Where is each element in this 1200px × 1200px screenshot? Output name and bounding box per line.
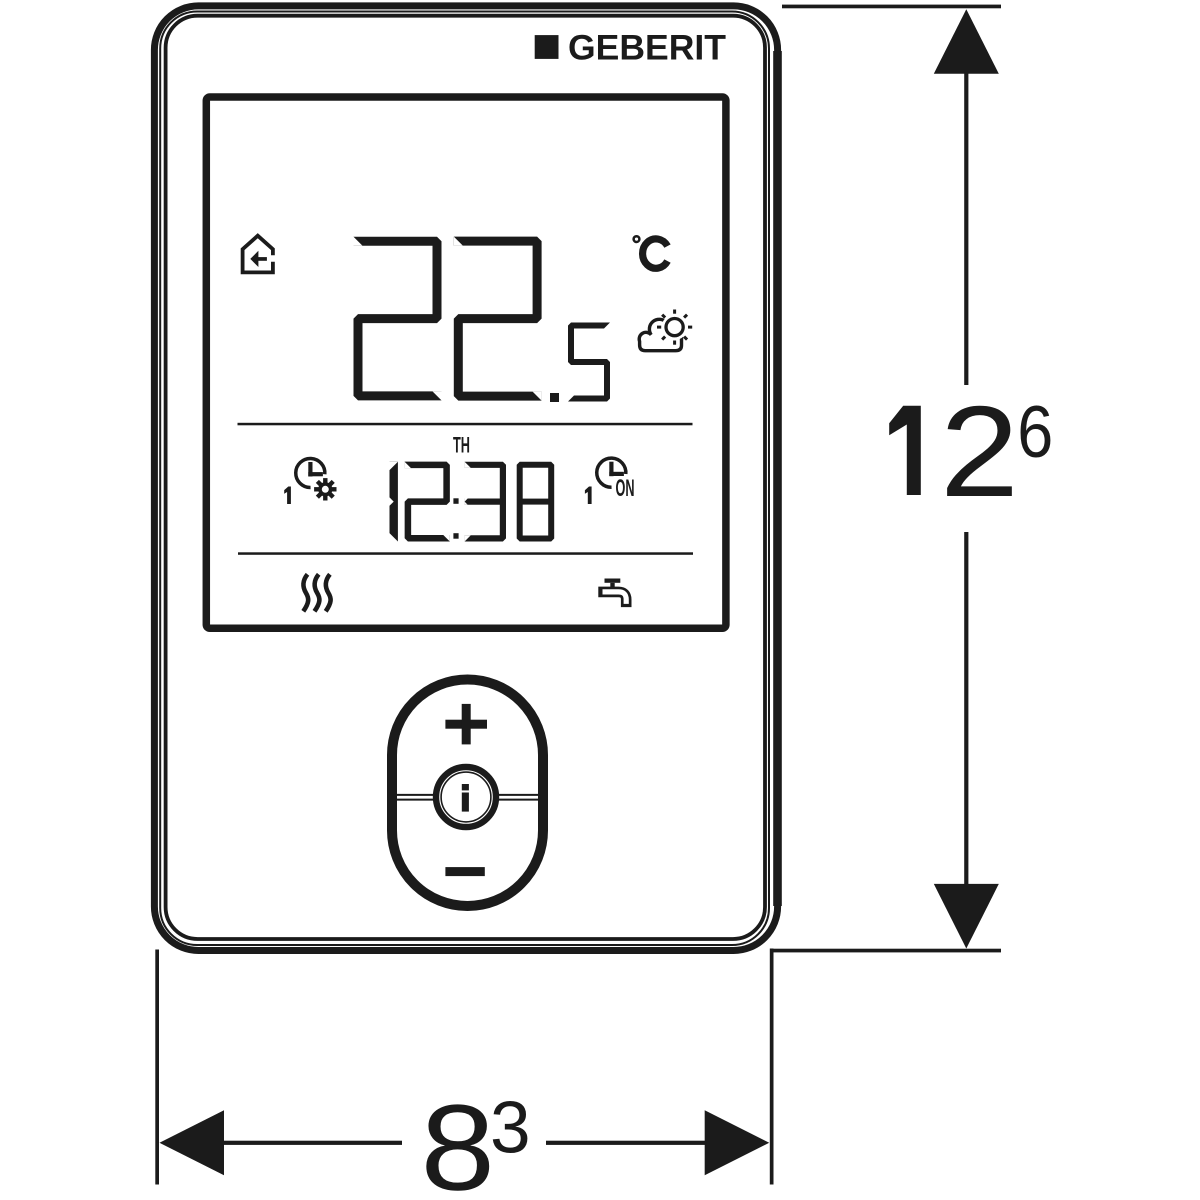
svg-text:6: 6 [1017, 392, 1053, 473]
svg-text:ON: ON [616, 475, 635, 502]
svg-text:TH: TH [453, 433, 470, 458]
svg-text:2: 2 [940, 379, 1019, 524]
svg-text:3: 3 [490, 1088, 531, 1169]
svg-text:8: 8 [421, 1080, 496, 1200]
svg-text:GEBERIT: GEBERIT [568, 29, 726, 68]
